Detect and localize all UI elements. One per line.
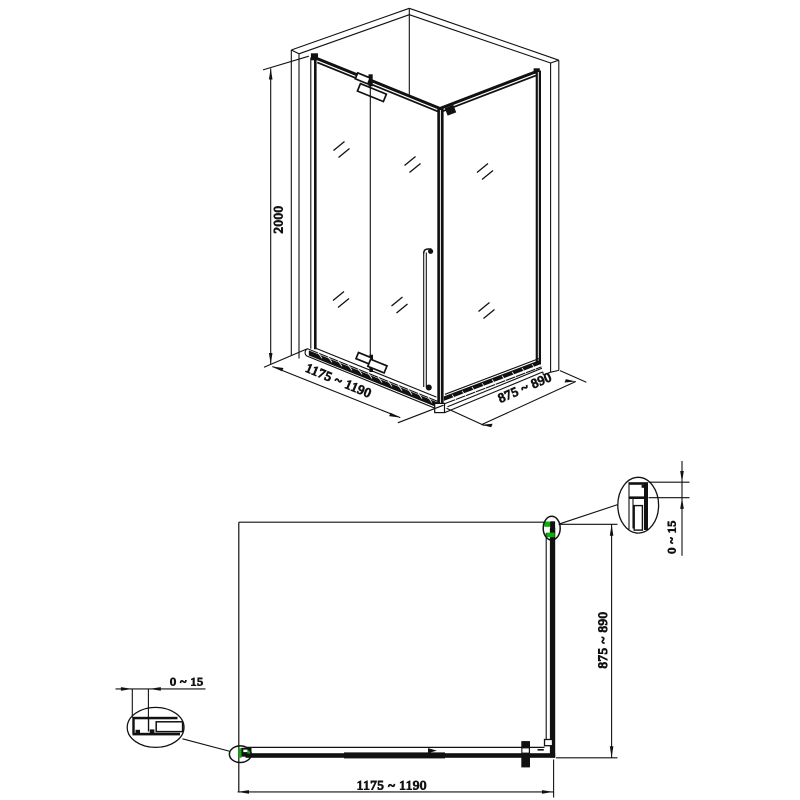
svg-text:875 ~ 890: 875 ~ 890	[595, 611, 610, 668]
svg-text:0 ~ 15: 0 ~ 15	[665, 520, 679, 554]
svg-text:0 ~ 15: 0 ~ 15	[170, 674, 204, 688]
svg-text:2000: 2000	[271, 206, 286, 234]
svg-text:1175 ~ 1190: 1175 ~ 1190	[357, 777, 427, 792]
